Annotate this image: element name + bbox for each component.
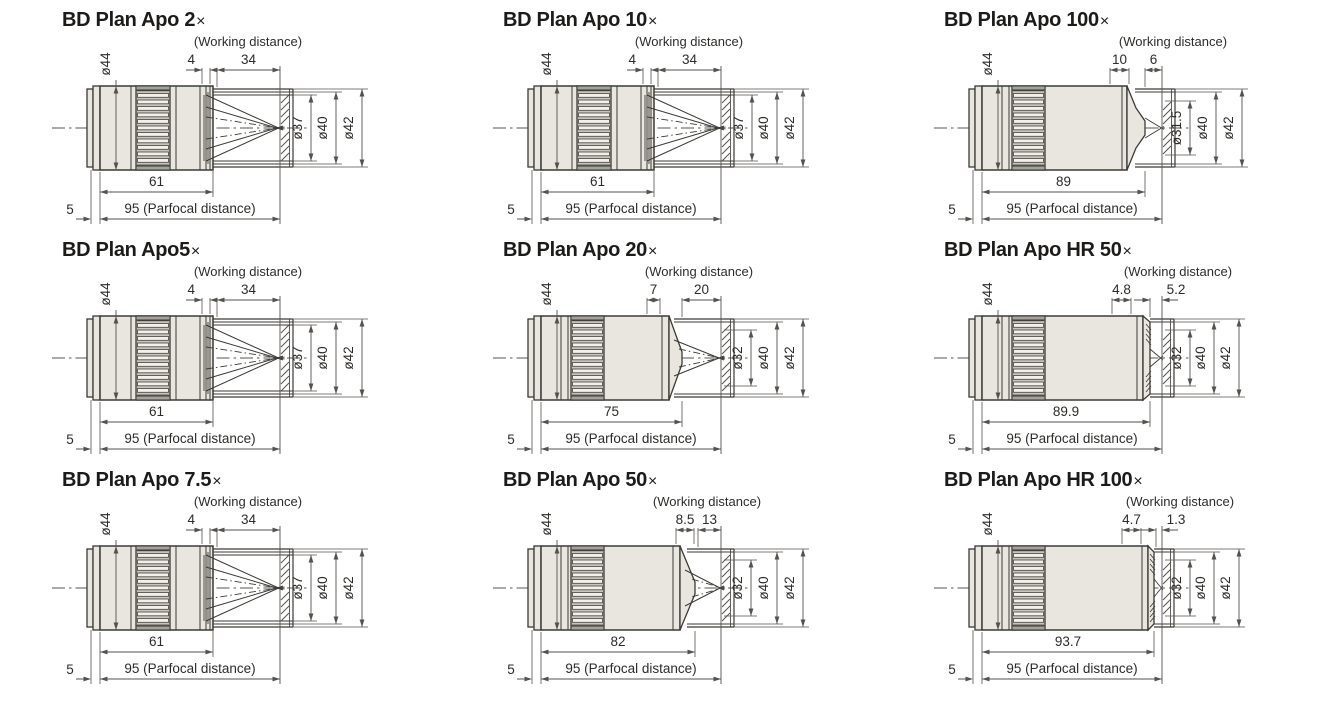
svg-text:ø31.5: ø31.5 xyxy=(1169,111,1184,146)
svg-text:75: 75 xyxy=(604,404,619,419)
diagram-title: BD Plan Apo 50× xyxy=(503,469,657,493)
svg-text:5: 5 xyxy=(948,432,956,447)
svg-text:ø40: ø40 xyxy=(756,116,771,139)
diagram-title: BD Plan Apo 100× xyxy=(944,9,1109,33)
diagram-cell-7-5x: BD Plan Apo 7.5× ø44(Working distance)43… xyxy=(0,460,441,703)
svg-text:(Working distance): (Working distance) xyxy=(645,264,753,279)
diagram-cell-100x: BD Plan Apo 100× ø44(Working distance)10… xyxy=(882,0,1323,230)
svg-text:5: 5 xyxy=(66,432,74,447)
svg-text:95 (Parfocal distance): 95 (Parfocal distance) xyxy=(124,201,255,216)
svg-text:5: 5 xyxy=(948,202,956,217)
svg-text:ø37: ø37 xyxy=(290,576,305,599)
svg-text:1.3: 1.3 xyxy=(1167,512,1186,527)
svg-text:5: 5 xyxy=(507,662,515,677)
svg-text:(Working distance): (Working distance) xyxy=(635,34,743,49)
svg-text:(Working distance): (Working distance) xyxy=(194,494,302,509)
svg-text:61: 61 xyxy=(149,634,164,649)
multiplier-sign: × xyxy=(196,13,205,30)
svg-text:82: 82 xyxy=(610,634,625,649)
svg-text:(Working distance): (Working distance) xyxy=(1119,34,1227,49)
svg-text:ø42: ø42 xyxy=(341,346,356,369)
svg-text:ø37: ø37 xyxy=(731,116,746,139)
multiplier-sign: × xyxy=(648,473,657,490)
diagram-cell-hr50x: BD Plan Apo HR 50× ø44(Working distance)… xyxy=(882,230,1323,460)
diagram-title: BD Plan Apo 10× xyxy=(503,9,657,33)
svg-text:ø42: ø42 xyxy=(1218,346,1233,369)
svg-text:95 (Parfocal distance): 95 (Parfocal distance) xyxy=(565,661,696,676)
svg-text:ø42: ø42 xyxy=(782,346,797,369)
svg-text:34: 34 xyxy=(241,52,257,67)
svg-text:20: 20 xyxy=(694,282,709,297)
svg-text:ø44: ø44 xyxy=(980,52,995,76)
svg-text:95 (Parfocal distance): 95 (Parfocal distance) xyxy=(124,431,255,446)
svg-text:34: 34 xyxy=(682,52,698,67)
multiplier-sign: × xyxy=(212,473,221,490)
diagram-title: BD Plan Apo HR 100× xyxy=(944,469,1142,493)
objective-drawing: ø44(Working distance)8.5138295 (Parfocal… xyxy=(441,460,882,703)
svg-text:ø40: ø40 xyxy=(1193,576,1208,599)
svg-text:61: 61 xyxy=(149,404,164,419)
svg-text:ø32: ø32 xyxy=(1169,576,1184,599)
diagram-title: BD Plan Apo 7.5× xyxy=(62,469,221,493)
objective-drawing: ø44(Working distance)4346195 (Parfocal d… xyxy=(441,0,882,230)
svg-text:95 (Parfocal distance): 95 (Parfocal distance) xyxy=(565,201,696,216)
objective-drawing: ø44(Working distance)4346195 (Parfocal d… xyxy=(0,460,441,703)
svg-text:ø40: ø40 xyxy=(1195,116,1210,139)
multiplier-sign: × xyxy=(1100,13,1109,30)
title-text: BD Plan Apo 10 xyxy=(503,9,647,31)
title-text: BD Plan Apo HR 100 xyxy=(944,469,1132,491)
svg-text:5: 5 xyxy=(948,662,956,677)
diagram-title: BD Plan Apo5× xyxy=(62,239,200,263)
diagram-cell-50x: BD Plan Apo 50× ø44(Working distance)8.5… xyxy=(441,460,882,703)
svg-text:(Working distance): (Working distance) xyxy=(1124,264,1232,279)
diagram-title: BD Plan Apo 2× xyxy=(62,9,205,33)
svg-text:ø44: ø44 xyxy=(980,512,995,536)
svg-text:ø42: ø42 xyxy=(782,576,797,599)
objective-drawing: ø44(Working distance)4.85.289.995 (Parfo… xyxy=(882,230,1323,460)
title-text: BD Plan Apo 7.5 xyxy=(62,469,211,491)
svg-text:4: 4 xyxy=(187,512,195,527)
svg-text:5: 5 xyxy=(507,432,515,447)
svg-text:ø44: ø44 xyxy=(980,282,995,306)
svg-text:34: 34 xyxy=(241,282,257,297)
multiplier-sign: × xyxy=(1133,473,1142,490)
svg-text:ø44: ø44 xyxy=(98,282,113,306)
svg-text:(Working distance): (Working distance) xyxy=(194,264,302,279)
svg-text:ø42: ø42 xyxy=(1221,116,1236,139)
svg-text:93.7: 93.7 xyxy=(1055,634,1081,649)
svg-text:ø37: ø37 xyxy=(290,116,305,139)
svg-text:4.7: 4.7 xyxy=(1122,512,1141,527)
objective-drawing: ø44(Working distance)1068995 (Parfocal d… xyxy=(882,0,1323,230)
svg-text:(Working distance): (Working distance) xyxy=(194,34,302,49)
title-text: BD Plan Apo 20 xyxy=(503,239,647,261)
svg-text:95 (Parfocal distance): 95 (Parfocal distance) xyxy=(565,431,696,446)
svg-text:95 (Parfocal distance): 95 (Parfocal distance) xyxy=(1006,661,1137,676)
multiplier-sign: × xyxy=(191,243,200,260)
diagram-cell-hr100x: BD Plan Apo HR 100× ø44(Working distance… xyxy=(882,460,1323,703)
svg-text:7: 7 xyxy=(650,282,658,297)
objective-drawing: ø44(Working distance)4.71.393.795 (Parfo… xyxy=(882,460,1323,703)
svg-text:5: 5 xyxy=(66,202,74,217)
title-text: BD Plan Apo 100 xyxy=(944,9,1099,31)
svg-text:ø44: ø44 xyxy=(539,282,554,306)
title-text: BD Plan Apo 2 xyxy=(62,9,195,31)
svg-text:ø44: ø44 xyxy=(539,512,554,536)
svg-text:ø44: ø44 xyxy=(98,52,113,76)
svg-text:ø42: ø42 xyxy=(1218,576,1233,599)
svg-text:ø40: ø40 xyxy=(315,346,330,369)
objective-drawing: ø44(Working distance)4346195 (Parfocal d… xyxy=(0,0,441,230)
svg-text:61: 61 xyxy=(149,174,164,189)
svg-text:4: 4 xyxy=(187,282,195,297)
svg-text:ø37: ø37 xyxy=(290,346,305,369)
svg-text:(Working distance): (Working distance) xyxy=(653,494,761,509)
svg-text:89.9: 89.9 xyxy=(1053,404,1079,419)
svg-text:ø42: ø42 xyxy=(782,116,797,139)
diagram-title: BD Plan Apo 20× xyxy=(503,239,657,263)
multiplier-sign: × xyxy=(1123,243,1132,260)
svg-text:ø40: ø40 xyxy=(756,346,771,369)
svg-text:10: 10 xyxy=(1112,52,1127,67)
svg-text:34: 34 xyxy=(241,512,257,527)
diagram-cell-5x: BD Plan Apo5× ø44(Working distance)43461… xyxy=(0,230,441,460)
svg-text:6: 6 xyxy=(1150,52,1158,67)
svg-text:5.2: 5.2 xyxy=(1167,282,1186,297)
title-text: BD Plan Apo 50 xyxy=(503,469,647,491)
svg-text:89: 89 xyxy=(1056,174,1071,189)
svg-text:95 (Parfocal distance): 95 (Parfocal distance) xyxy=(124,661,255,676)
svg-text:61: 61 xyxy=(590,174,605,189)
svg-text:5: 5 xyxy=(507,202,515,217)
svg-text:ø44: ø44 xyxy=(98,512,113,536)
svg-text:ø32: ø32 xyxy=(730,346,745,369)
svg-text:ø42: ø42 xyxy=(341,116,356,139)
svg-text:95 (Parfocal distance): 95 (Parfocal distance) xyxy=(1006,431,1137,446)
svg-text:ø40: ø40 xyxy=(1193,346,1208,369)
svg-text:ø32: ø32 xyxy=(730,576,745,599)
svg-text:(Working distance): (Working distance) xyxy=(1126,494,1234,509)
diagram-cell-20x: BD Plan Apo 20× ø44(Working distance)720… xyxy=(441,230,882,460)
svg-text:4: 4 xyxy=(187,52,195,67)
title-text: BD Plan Apo5 xyxy=(62,239,190,261)
svg-text:ø32: ø32 xyxy=(1169,346,1184,369)
svg-text:ø42: ø42 xyxy=(341,576,356,599)
objective-drawing: ø44(Working distance)4346195 (Parfocal d… xyxy=(0,230,441,460)
svg-text:4: 4 xyxy=(628,52,636,67)
svg-text:ø40: ø40 xyxy=(315,576,330,599)
objective-diagram-grid: BD Plan Apo 2× ø44(Working distance)4346… xyxy=(0,0,1323,703)
multiplier-sign: × xyxy=(648,13,657,30)
diagram-cell-2x: BD Plan Apo 2× ø44(Working distance)4346… xyxy=(0,0,441,230)
svg-text:5: 5 xyxy=(66,662,74,677)
svg-text:4.8: 4.8 xyxy=(1112,282,1131,297)
diagram-cell-10x: BD Plan Apo 10× ø44(Working distance)434… xyxy=(441,0,882,230)
objective-drawing: ø44(Working distance)7207595 (Parfocal d… xyxy=(441,230,882,460)
svg-text:ø44: ø44 xyxy=(539,52,554,76)
svg-text:ø40: ø40 xyxy=(315,116,330,139)
diagram-title: BD Plan Apo HR 50× xyxy=(944,239,1132,263)
svg-text:13: 13 xyxy=(702,512,717,527)
svg-text:ø40: ø40 xyxy=(756,576,771,599)
svg-text:8.5: 8.5 xyxy=(676,512,695,527)
title-text: BD Plan Apo HR 50 xyxy=(944,239,1122,261)
multiplier-sign: × xyxy=(648,243,657,260)
svg-text:95 (Parfocal distance): 95 (Parfocal distance) xyxy=(1006,201,1137,216)
